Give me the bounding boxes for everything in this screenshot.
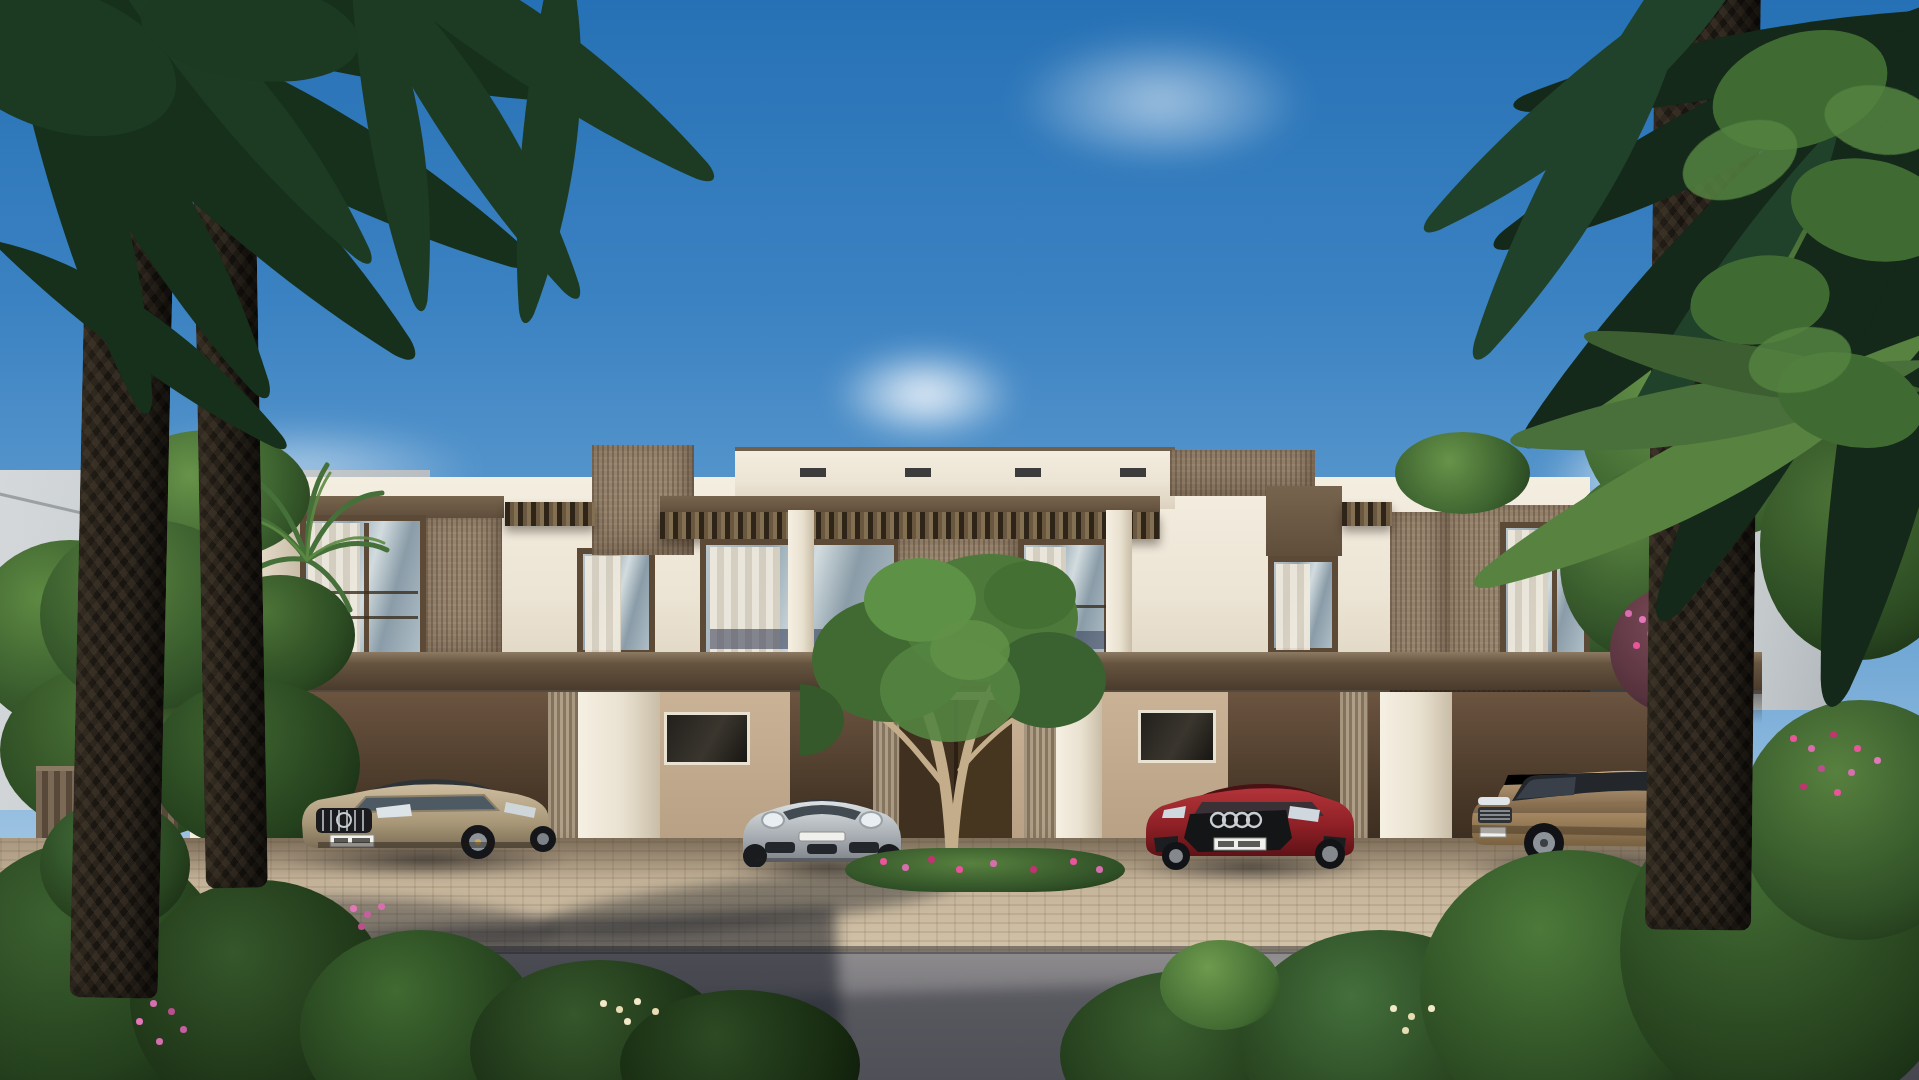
- architectural-render-scene: [0, 0, 1919, 1080]
- palm-fronds-overlay: [0, 0, 1919, 1080]
